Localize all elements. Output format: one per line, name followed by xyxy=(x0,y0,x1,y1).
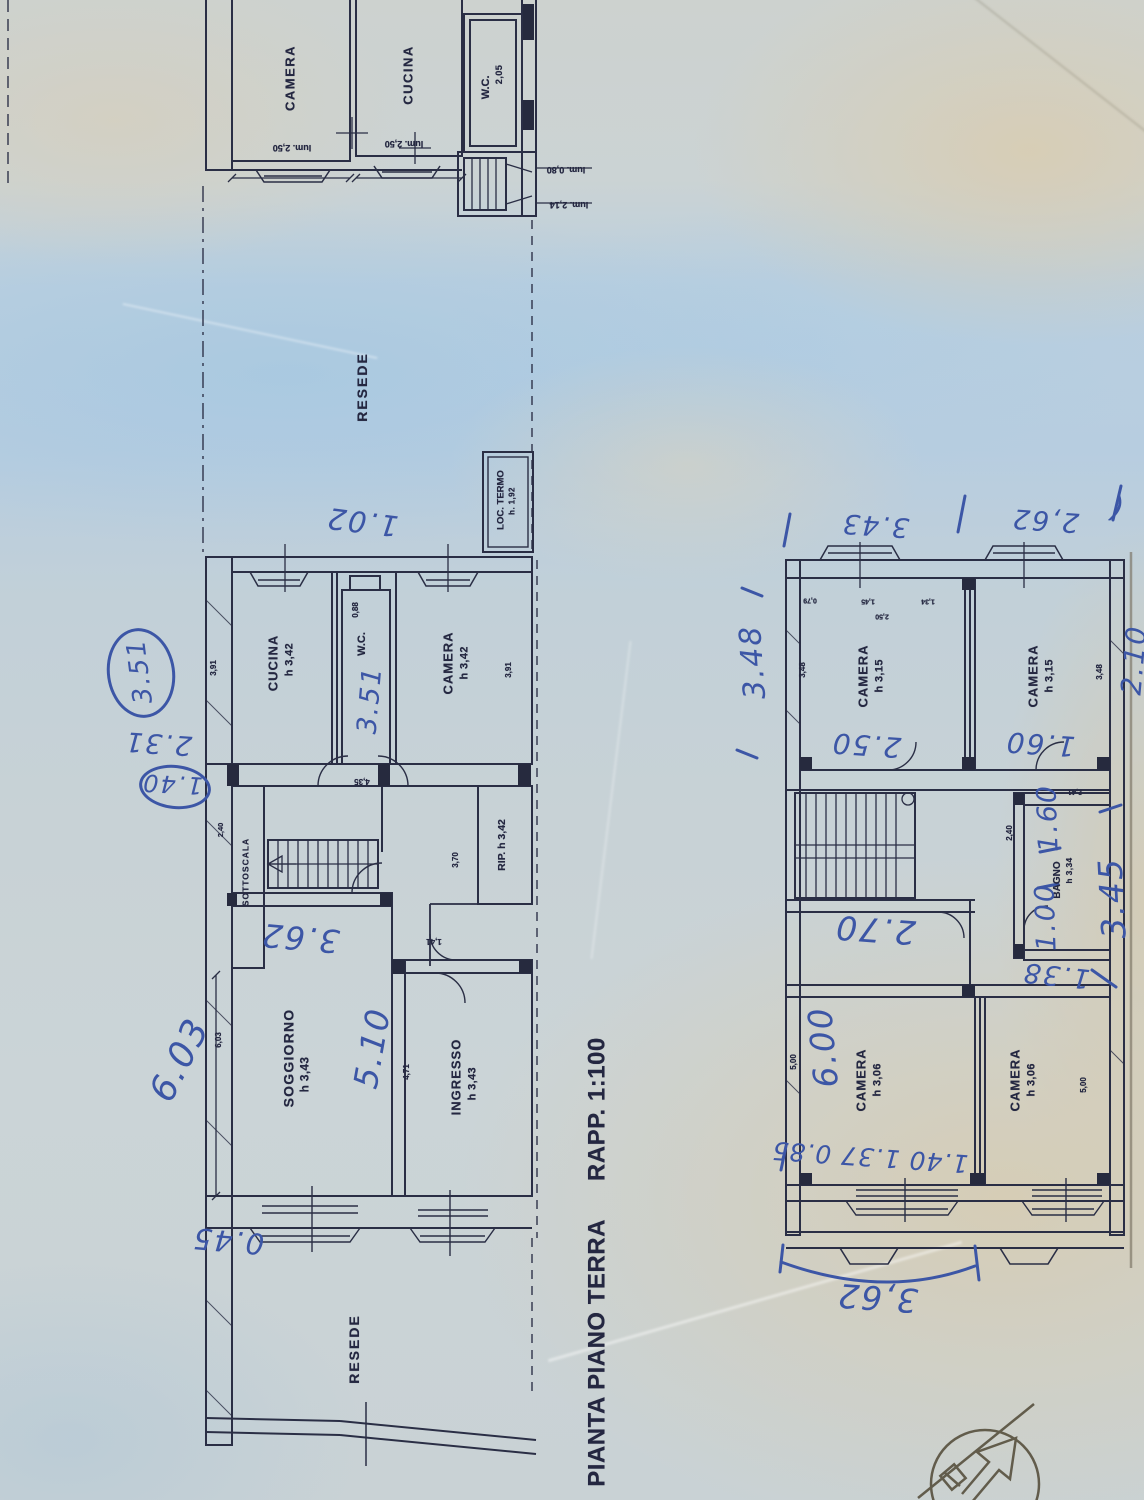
handwritten-250: 2.50 xyxy=(830,726,902,764)
handwritten-140: 1.40 xyxy=(141,768,204,799)
room-label-cucina-top: CUCINA xyxy=(401,45,418,105)
dim-label: 3,48 xyxy=(798,662,808,678)
room-name: INGRESSO xyxy=(448,1039,465,1116)
handwritten-160-bagno: 1.60 xyxy=(1031,783,1064,852)
handwritten-270: 2.70 xyxy=(833,908,917,953)
room-name: SOGGIORNO xyxy=(279,1009,297,1108)
room-name: CUCINA xyxy=(265,635,282,692)
room-name: CAMERA xyxy=(853,1048,870,1111)
area-label-resede-top: RESEDE xyxy=(353,352,371,422)
title-block: PIANTA PIANO TERRARAPP. 1:100 xyxy=(581,1037,612,1486)
handwritten-362: 3.62 xyxy=(259,916,341,961)
dim-label-lum-short: lum. 0,80 xyxy=(547,163,586,175)
dim-label: 0,88 xyxy=(351,602,361,618)
dim-label: 5,00 xyxy=(789,1054,799,1070)
handwritten-100: 1.00 xyxy=(1029,882,1062,951)
room-label-wc-ground: W.C. xyxy=(355,632,369,656)
dim-label: 3,91 xyxy=(504,662,514,678)
dim-label-cucina-top-lum: lum. 2,50 xyxy=(385,137,424,149)
room-name: CAMERA xyxy=(440,631,457,694)
dim-label: 1,34 xyxy=(921,596,935,605)
handwritten-045: 0.45 xyxy=(190,1221,265,1261)
dim-label-camera-top-lum: lum. 2,50 xyxy=(273,141,312,153)
room-height: h 3,42 xyxy=(282,635,296,677)
handwritten-343: 3.43 xyxy=(840,507,910,543)
dim-label: 0,79 xyxy=(803,595,817,604)
handwritten-262: 2,62 xyxy=(1010,502,1080,538)
dim-label-lum-long: lum. 2,14 xyxy=(550,198,589,210)
handwritten-210: 2.10 xyxy=(1114,624,1144,697)
dim-label: 3,70 xyxy=(451,852,461,868)
room-height: h 3,15 xyxy=(872,644,886,692)
dim-label: 2,50 xyxy=(875,611,889,620)
handwritten-345: 3.45 xyxy=(1090,856,1133,939)
room-label-loc-termo: LOC. TERMO h. 1,92 xyxy=(496,470,519,530)
room-label-cucina-ground: CUCINA h 3,42 xyxy=(265,635,296,692)
room-height: h 3,06 xyxy=(870,1048,884,1096)
room-label-camera-b: CAMERA h 3,15 xyxy=(1025,644,1056,707)
dim-label: 1,41 xyxy=(426,936,442,946)
room-name: CAMERA xyxy=(855,644,872,707)
room-height: 2,05 xyxy=(493,65,505,85)
room-label-camera-d: CAMERA h 3,06 xyxy=(1007,1048,1038,1111)
room-label-ingresso: INGRESSO h 3,43 xyxy=(448,1039,479,1116)
room-label-camera-c: CAMERA h 3,06 xyxy=(853,1048,884,1111)
dim-label: 1,45 xyxy=(861,596,875,605)
dim-label: 4,71 xyxy=(402,1064,412,1080)
room-label-camera-top: CAMERA xyxy=(283,45,300,111)
dim-label: 3,48 xyxy=(1095,664,1105,680)
room-height: h 3,42 xyxy=(457,631,471,679)
room-height: h 3,43 xyxy=(465,1039,479,1101)
room-height: h 3,34 xyxy=(1064,857,1075,883)
ground-plan xyxy=(206,452,536,1466)
room-height: h 3,15 xyxy=(1042,644,1056,692)
handwritten-231: 2.31 xyxy=(123,725,193,761)
scale-label: RAPP. 1:100 xyxy=(583,1037,610,1181)
room-label-soggiorno: SOGGIORNO h 3,43 xyxy=(279,1009,312,1108)
room-name: CAMERA xyxy=(1007,1048,1024,1111)
dim-label: 2,40 xyxy=(216,823,226,838)
handwritten-348: 3.48 xyxy=(733,623,773,700)
room-height: h 3,06 xyxy=(1024,1048,1038,1096)
page-title: PIANTA PIANO TERRA xyxy=(583,1219,610,1487)
dim-label: 4,35 xyxy=(354,776,370,786)
dim-label: 2,41 xyxy=(1068,787,1083,797)
dim-label: 3,91 xyxy=(209,660,219,676)
north-arrow xyxy=(918,1404,1039,1500)
room-name: CAMERA xyxy=(1025,644,1042,707)
top-plan xyxy=(206,0,592,216)
blueprint-sheet: CAMERA lum. 2,50 CUCINA lum. 2,50 W.C. 2… xyxy=(0,0,1144,1500)
room-label-camera-a: CAMERA h 3,15 xyxy=(855,644,886,707)
room-name: LOC. TERMO xyxy=(496,470,508,530)
room-label-camera-ground: CAMERA h 3,42 xyxy=(440,631,471,694)
handwritten-362-bottom: 3,62 xyxy=(835,1276,919,1321)
room-name: W.C. xyxy=(479,65,493,100)
handwritten-600: 6.00 xyxy=(800,1005,846,1090)
room-label-wc-top: W.C. 2,05 xyxy=(479,65,505,100)
handwritten-160-camera: 1.60 xyxy=(1004,725,1076,763)
room-height: h. 1,92 xyxy=(508,470,518,515)
room-label-rip: RIP. h 3,42 xyxy=(496,819,510,871)
handwritten-wc-351: 3.51 xyxy=(352,665,389,736)
room-label-sottoscala: SOTTOSCALA xyxy=(240,838,251,906)
dim-label: 5,00 xyxy=(1079,1077,1089,1093)
dim-label: 2,40 xyxy=(1005,825,1015,841)
area-label-resede-bottom: RESEDE xyxy=(345,1314,363,1384)
room-height: h 3,43 xyxy=(297,1009,312,1093)
